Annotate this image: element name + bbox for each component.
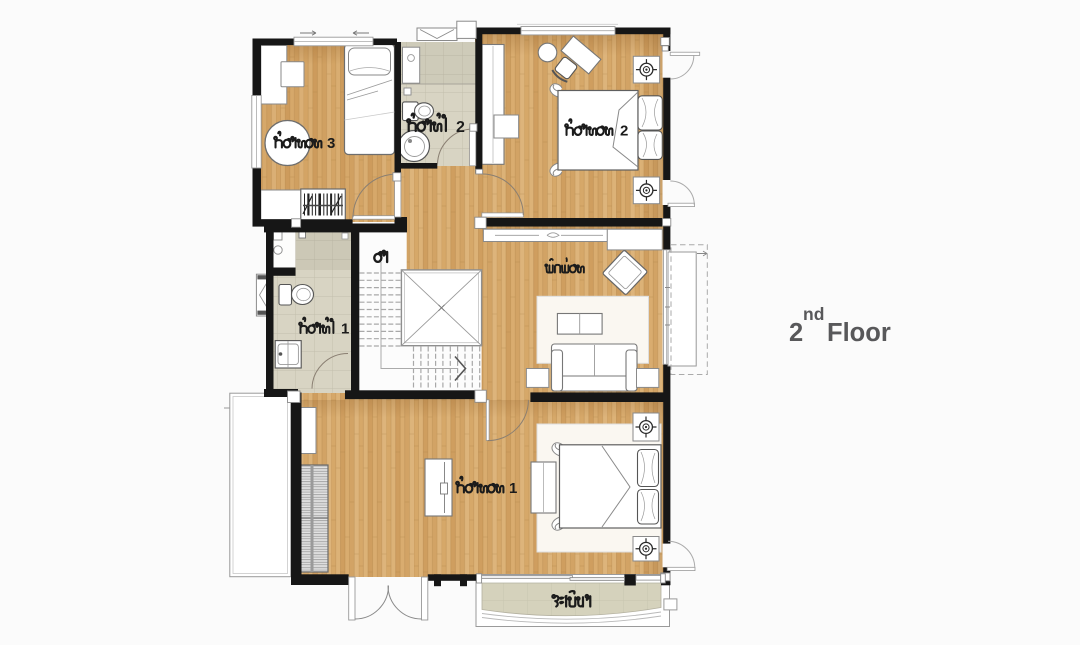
svg-text:2: 2 bbox=[789, 319, 803, 347]
svg-text:nd: nd bbox=[803, 304, 824, 324]
svg-text:2: 2 bbox=[620, 123, 628, 140]
svg-text:3: 3 bbox=[327, 135, 335, 152]
svg-text:2: 2 bbox=[456, 119, 465, 136]
svg-text:1: 1 bbox=[341, 321, 349, 338]
svg-text:1: 1 bbox=[509, 480, 517, 497]
svg-text:Floor: Floor bbox=[827, 319, 891, 347]
